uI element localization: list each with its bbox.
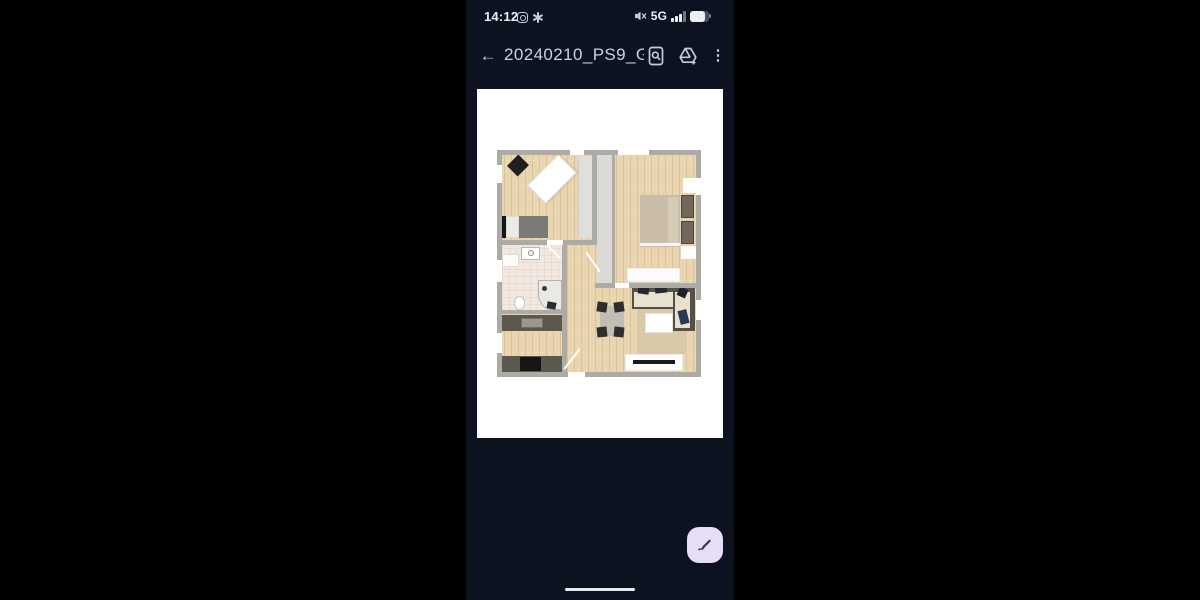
floor-plan-image [497,150,701,377]
bedroom-white-dresser-upper [683,178,696,193]
asterisk-app-icon [532,11,543,24]
bathroom-sink-counter [502,254,519,267]
network-type: 5G [651,9,667,23]
office-chair [507,155,529,177]
window-bottom-corridor [568,372,585,377]
wall-kitchen-corridor [562,245,567,372]
single-bed-pillow [506,216,519,238]
wall-bedroom-living [595,283,701,288]
wall-bath-kitchen [497,310,567,314]
door-gap-bathroom [547,240,563,245]
back-arrow-icon[interactable]: ← [476,44,500,68]
nightstand-lower [681,221,694,244]
instagram-icon [517,12,528,23]
office-wardrobe [578,156,592,238]
edit-pen-icon [695,535,715,555]
home-indicator[interactable] [565,588,635,591]
nightstand-upper [681,195,694,218]
office-desk [527,154,576,203]
kebab-menu-icon[interactable]: ⋮ [708,44,728,68]
double-bed-pillow-zone [668,197,678,245]
window-right-living [696,300,701,320]
document-scan-icon[interactable] [644,44,668,68]
volume-muted-icon [634,10,647,22]
photo-card[interactable] [477,89,723,438]
window-top-bedroom [618,150,649,155]
shower-fixture [546,301,556,309]
window-left-kitchen [497,333,502,353]
tv [633,360,675,364]
cooktop [520,357,541,371]
drive-add-icon[interactable] [676,44,700,68]
wall-strip-right [612,153,615,285]
wall-bottom [497,372,701,377]
window-left-bath [497,260,502,282]
dining-chair-4 [614,327,625,338]
bedroom-white-dresser-lower [681,246,696,259]
dining-chair-3 [597,327,608,338]
dining-chair-2 [613,301,624,312]
wall-office-hall [592,150,597,245]
wall-top [497,150,701,155]
edit-fab[interactable] [687,527,723,563]
battery-icon [690,11,712,22]
kitchen-sink [521,318,543,328]
coffee-table [645,313,673,333]
door-gap-living [615,283,629,288]
photo-filename-title: 20240210_PS9_G... [504,45,644,65]
dining-chair-1 [596,301,607,312]
single-bed-blanket [519,216,548,238]
washing-machine-door [528,250,534,256]
wall-office-bath [497,240,592,245]
toilet [514,296,525,310]
signal-bars-icon [671,11,686,22]
app-header: ← 20240210_PS9_G... ⋮ [466,40,734,74]
phone-screen: 14:12 5G ← 20240210_PS9_G... [466,0,734,600]
window-left-office [497,165,502,183]
bedroom-bench [627,268,680,282]
clock: 14:12 [484,9,518,24]
double-bed-sheet-edge [640,243,680,246]
hallway-closet-strip [597,153,612,285]
status-bar: 14:12 5G [466,0,734,32]
shower-head [542,286,547,291]
window-right-bedroom [696,178,701,195]
window-top-office [570,150,584,155]
